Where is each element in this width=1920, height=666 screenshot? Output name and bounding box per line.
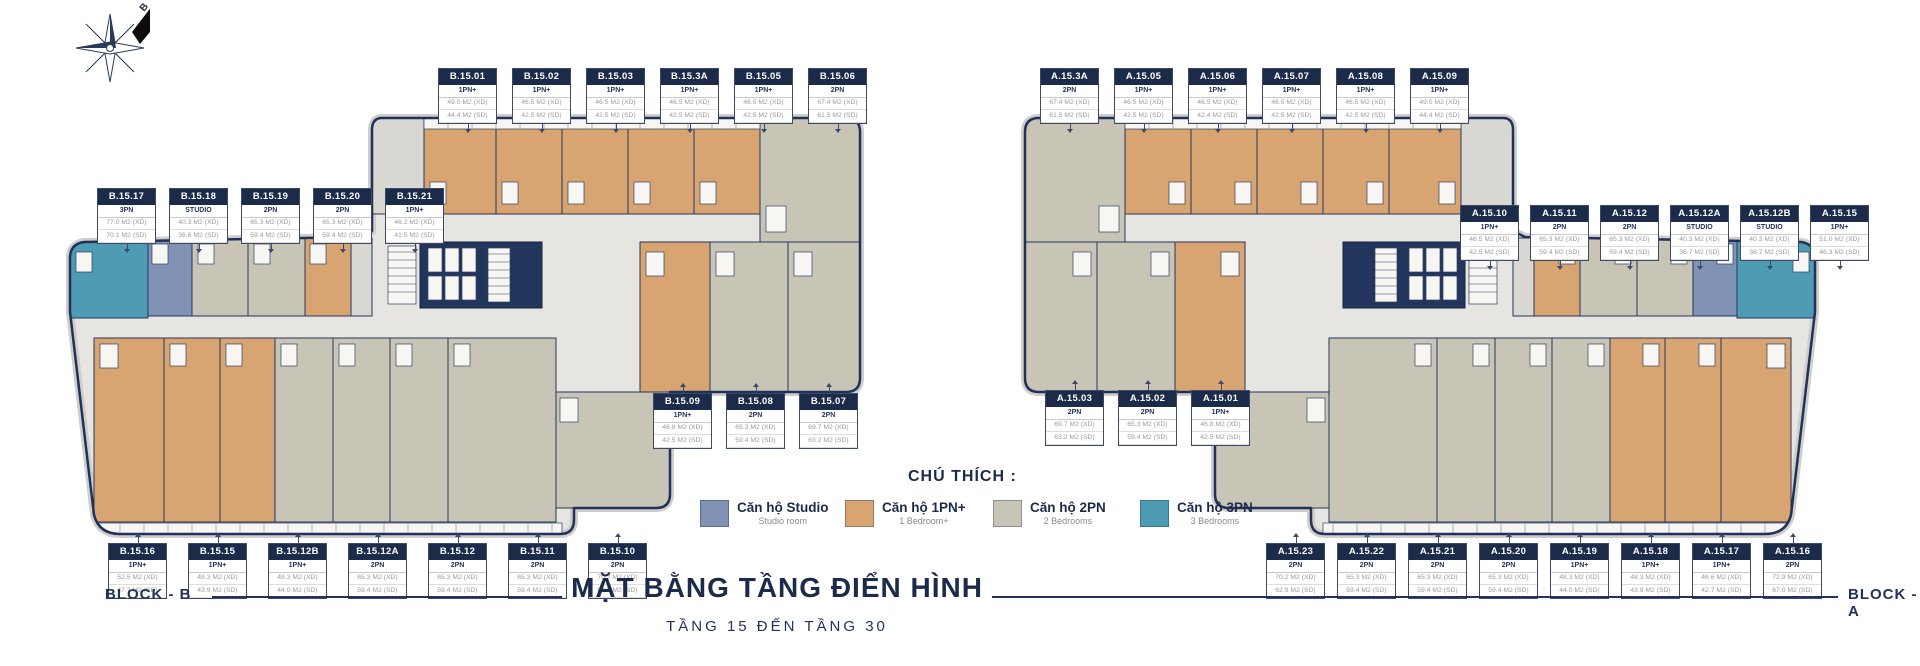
2pn-color-swatch xyxy=(993,500,1022,527)
leader-line xyxy=(616,123,617,130)
unit-id: A.15.05 xyxy=(1115,69,1172,85)
unit-area-sd: 63.2 M2 (SD) xyxy=(800,435,857,448)
unit-area-sd: 59.4 M2 (SD) xyxy=(242,230,299,243)
unit-area-xd: 48.3 M2 (XD) xyxy=(1551,573,1608,586)
unit-area-sd: 42.5 M2 (SD) xyxy=(513,110,570,123)
leader-line xyxy=(1793,536,1794,544)
unit-id: A.15.12 xyxy=(1601,206,1658,222)
unit-area-sd: 59.4 M2 (SD) xyxy=(1119,432,1176,445)
block-b-caption: BLOCK - B xyxy=(105,586,192,603)
unit-label: A.15.06 1PN+ 46.5 M2 (XD) 42.4 M2 (SD) xyxy=(1188,68,1247,124)
legend-label-vi: Căn hộ 3PN xyxy=(1177,500,1253,516)
unit-type: 2PN xyxy=(314,205,371,218)
unit-label: B.15.11 2PN 65.3 M2 (XD) 59.4 M2 (SD) xyxy=(508,543,567,599)
unit-label: B.15.20 2PN 65.3 M2 (XD) 59.4 M2 (SD) xyxy=(313,188,372,244)
unit-area-xd: 65.3 M2 (XD) xyxy=(314,218,371,231)
unit-id: B.15.09 xyxy=(654,394,711,410)
unit-label: A.15.07 1PN+ 46.5 M2 (XD) 42.5 M2 (SD) xyxy=(1262,68,1321,124)
unit-label: B.15.15 1PN+ 48.3 M2 (XD) 43.9 M2 (SD) xyxy=(188,543,247,599)
leader-line xyxy=(218,536,219,544)
unit-id: A.15.09 xyxy=(1411,69,1468,85)
3pn-color-swatch xyxy=(1140,500,1169,527)
unit-id: A.15.08 xyxy=(1337,69,1394,85)
unit-label: B.15.19 2PN 65.3 M2 (XD) 59.4 M2 (SD) xyxy=(241,188,300,244)
unit-area-xd: 48.3 M2 (XD) xyxy=(269,573,326,586)
unit-id: B.15.20 xyxy=(314,189,371,205)
unit-id: A.15.21 xyxy=(1409,544,1466,560)
unit-type: 2PN xyxy=(800,410,857,423)
block-a-rule xyxy=(992,596,1838,598)
unit-label: A.15.19 1PN+ 48.3 M2 (XD) 44.0 M2 (SD) xyxy=(1550,543,1609,599)
unit-type: 1PN+ xyxy=(1337,85,1394,98)
unit-type: 1PN+ xyxy=(587,85,644,98)
unit-type: 2PN xyxy=(727,410,784,423)
block-a-plan xyxy=(1025,118,1815,534)
unit-label: A.15.09 1PN+ 49.0 M2 (XD) 44.4 M2 (SD) xyxy=(1410,68,1469,124)
unit-label: A.15.02 2PN 65.3 M2 (XD) 59.4 M2 (SD) xyxy=(1118,390,1177,446)
unit-label: A.15.23 2PN 70.2 M2 (XD) 62.9 M2 (SD) xyxy=(1266,543,1325,599)
leader-line xyxy=(468,123,469,130)
unit-id: A.15.15 xyxy=(1811,206,1868,222)
leader-line xyxy=(838,123,839,130)
unit-id: B.15.11 xyxy=(509,544,566,560)
unit-type: 2PN xyxy=(809,85,866,98)
leader-line xyxy=(1651,536,1652,544)
leader-line xyxy=(1296,536,1297,544)
unit-id: A.15.12B xyxy=(1741,206,1798,222)
unit-area-sd: 42.5 M2 (SD) xyxy=(1461,247,1518,260)
leader-line xyxy=(538,536,539,544)
unit-area-sd: 42.5 M2 (SD) xyxy=(654,435,711,448)
leader-line xyxy=(378,536,379,544)
unit-type: 1PN+ xyxy=(1115,85,1172,98)
unit-area-xd: 46.5 M2 (XD) xyxy=(1461,235,1518,248)
unit-label-group-a-top: A.15.3A 2PN 67.4 M2 (XD) 61.5 M2 (SD) A.… xyxy=(1040,68,1469,124)
leader-line xyxy=(415,243,416,250)
unit-area-xd: 46.2 M2 (XD) xyxy=(386,218,443,231)
unit-label: A.15.20 2PN 65.3 M2 (XD) 59.4 M2 (SD) xyxy=(1479,543,1538,599)
unit-type: 1PN+ xyxy=(661,85,718,98)
unit-id: B.15.18 xyxy=(170,189,227,205)
unit-type: 2PN xyxy=(509,560,566,573)
unit-area-xd: 40.3 M2 (XD) xyxy=(170,218,227,231)
unit-area-sd: 36.7 M2 (SD) xyxy=(1671,247,1728,260)
unit-type: 2PN xyxy=(1531,222,1588,235)
unit-id: B.15.01 xyxy=(439,69,496,85)
unit-area-sd: 44.4 M2 (SD) xyxy=(1411,110,1468,123)
unit-label-group-b-middle: B.15.09 1PN+ 46.8 M2 (XD) 42.5 M2 (SD) B… xyxy=(653,393,858,449)
legend-label-vi: Căn hộ 1PN+ xyxy=(882,500,966,516)
unit-label: A.15.16 2PN 72.9 M2 (XD) 67.0 M2 (SD) xyxy=(1763,543,1822,599)
unit-id: B.15.03 xyxy=(587,69,644,85)
legend-item-2pn: Căn hộ 2PN 2 Bedrooms xyxy=(993,500,1106,527)
unit-id: A.15.12A xyxy=(1671,206,1728,222)
unit-type: 1PN+ xyxy=(735,85,792,98)
unit-label: B.15.12A 2PN 65.3 M2 (XD) 59.4 M2 (SD) xyxy=(348,543,407,599)
unit-area-xd: 40.3 M2 (XD) xyxy=(1741,235,1798,248)
unit-area-sd: 44.4 M2 (SD) xyxy=(439,110,496,123)
unit-id: A.15.11 xyxy=(1531,206,1588,222)
unit-label: B.15.03 1PN+ 46.5 M2 (XD) 42.5 M2 (SD) xyxy=(586,68,645,124)
leader-line xyxy=(618,536,619,544)
unit-type: 1PN+ xyxy=(1551,560,1608,573)
unit-label: A.15.22 2PN 65.3 M2 (XD) 59.4 M2 (SD) xyxy=(1337,543,1396,599)
unit-type: 2PN xyxy=(1338,560,1395,573)
unit-type: 1PN+ xyxy=(1411,85,1468,98)
unit-area-xd: 65.3 M2 (XD) xyxy=(429,573,486,586)
unit-area-xd: 72.9 M2 (XD) xyxy=(1764,573,1821,586)
leader-line xyxy=(1560,260,1561,267)
unit-id: A.15.07 xyxy=(1263,69,1320,85)
unit-type: 2PN xyxy=(1764,560,1821,573)
unit-label: A.15.18 1PN+ 48.3 M2 (XD) 43.9 M2 (SD) xyxy=(1621,543,1680,599)
unit-id: A.15.17 xyxy=(1693,544,1750,560)
unit-label: B.15.3A 1PN+ 46.5 M2 (XD) 42.5 M2 (SD) xyxy=(660,68,719,124)
unit-area-sd: 42.5 M2 (SD) xyxy=(1192,432,1249,445)
legend-label-en: 1 Bedroom+ xyxy=(882,516,966,528)
unit-label: A.15.21 2PN 65.3 M2 (XD) 59.4 M2 (SD) xyxy=(1408,543,1467,599)
unit-label: A.15.17 1PN+ 46.6 M2 (XD) 42.7 M2 (SD) xyxy=(1692,543,1751,599)
unit-type: STUDIO xyxy=(1671,222,1728,235)
unit-area-xd: 67.4 M2 (XD) xyxy=(1041,98,1098,111)
unit-area-xd: 46.5 M2 (XD) xyxy=(587,98,644,111)
unit-area-sd: 42.4 M2 (SD) xyxy=(1189,110,1246,123)
unit-label: B.15.05 1PN+ 46.5 M2 (XD) 42.5 M2 (SD) xyxy=(734,68,793,124)
unit-id: A.15.20 xyxy=(1480,544,1537,560)
unit-area-xd: 48.3 M2 (XD) xyxy=(189,573,246,586)
unit-area-xd: 46.5 M2 (XD) xyxy=(1337,98,1394,111)
unit-label-group-a-bottom: A.15.23 2PN 70.2 M2 (XD) 62.9 M2 (SD) A.… xyxy=(1266,543,1822,599)
unit-label-group-a-right: A.15.10 1PN+ 46.5 M2 (XD) 42.5 M2 (SD) A… xyxy=(1460,205,1869,261)
unit-id: A.15.10 xyxy=(1461,206,1518,222)
unit-type: STUDIO xyxy=(170,205,227,218)
leader-line xyxy=(690,123,691,130)
unit-id: B.15.08 xyxy=(727,394,784,410)
unit-label-group-b-top: B.15.01 1PN+ 49.0 M2 (XD) 44.4 M2 (SD) B… xyxy=(438,68,867,124)
unit-type: 2PN xyxy=(429,560,486,573)
unit-label: B.15.01 1PN+ 49.0 M2 (XD) 44.4 M2 (SD) xyxy=(438,68,497,124)
block-a-caption: BLOCK - A xyxy=(1848,586,1920,620)
unit-label: B.15.21 1PN+ 46.2 M2 (XD) 41.5 M2 (SD) xyxy=(385,188,444,244)
unit-id: A.15.22 xyxy=(1338,544,1395,560)
leader-line xyxy=(1490,260,1491,267)
unit-area-xd: 46.5 M2 (XD) xyxy=(1115,98,1172,111)
unit-label: B.15.06 2PN 67.4 M2 (XD) 61.5 M2 (SD) xyxy=(808,68,867,124)
unit-id: B.15.19 xyxy=(242,189,299,205)
unit-id: A.15.03 xyxy=(1046,391,1103,407)
unit-area-sd: 46.3 M2 (SD) xyxy=(1811,247,1868,260)
leader-line xyxy=(683,386,684,394)
unit-label: A.15.10 1PN+ 46.5 M2 (XD) 42.5 M2 (SD) xyxy=(1460,205,1519,261)
unit-area-sd: 42.5 M2 (SD) xyxy=(661,110,718,123)
legend-label-en: 2 Bedrooms xyxy=(1030,516,1106,528)
unit-label: B.15.12 2PN 65.3 M2 (XD) 59.4 M2 (SD) xyxy=(428,543,487,599)
leader-line xyxy=(756,386,757,394)
unit-id: A.15.01 xyxy=(1192,391,1249,407)
unit-area-sd: 59.4 M2 (SD) xyxy=(1531,247,1588,260)
floor-plan-page: B B.15.01 1PN+ 49.0 M2 (XD) 44.4 M2 (SD)… xyxy=(0,0,1920,666)
unit-id: B.15.3A xyxy=(661,69,718,85)
unit-type: 2PN xyxy=(242,205,299,218)
leader-line xyxy=(343,243,344,250)
unit-area-xd: 46.5 M2 (XD) xyxy=(661,98,718,111)
unit-label: A.15.05 1PN+ 46.5 M2 (XD) 42.5 M2 (SD) xyxy=(1114,68,1173,124)
unit-area-xd: 69.7 M2 (XD) xyxy=(1046,420,1103,433)
legend-label-en: Studio room xyxy=(737,516,829,528)
legend-label-vi: Căn hộ Studio xyxy=(737,500,829,516)
unit-id: B.15.12A xyxy=(349,544,406,560)
unit-area-xd: 65.3 M2 (XD) xyxy=(1338,573,1395,586)
studio-color-swatch xyxy=(700,500,729,527)
unit-area-xd: 65.3 M2 (XD) xyxy=(242,218,299,231)
unit-area-sd: 70.1 M2 (SD) xyxy=(98,230,155,243)
unit-area-xd: 69.7 M2 (XD) xyxy=(800,423,857,436)
unit-type: 1PN+ xyxy=(1461,222,1518,235)
legend-label-en: 3 Bedrooms xyxy=(1177,516,1253,528)
unit-label: A.15.03 2PN 69.7 M2 (XD) 63.2 M2 (SD) xyxy=(1045,390,1104,446)
leader-line xyxy=(764,123,765,130)
block-b-rule xyxy=(212,596,562,598)
unit-type: 1PN+ xyxy=(1189,85,1246,98)
unit-type: 1PN+ xyxy=(109,560,166,573)
unit-id: A.15.23 xyxy=(1267,544,1324,560)
unit-id: B.15.17 xyxy=(98,189,155,205)
leader-line xyxy=(458,536,459,544)
unit-type: 2PN xyxy=(1041,85,1098,98)
unit-area-sd: 63.2 M2 (SD) xyxy=(1046,432,1103,445)
page-title: MẶT BẰNG TẦNG ĐIỂN HÌNH xyxy=(571,572,983,604)
compass-icon: B xyxy=(40,2,150,87)
leader-line xyxy=(829,386,830,394)
unit-id: A.15.16 xyxy=(1764,544,1821,560)
leader-line xyxy=(1144,123,1145,130)
unit-label-group-a-middle: A.15.03 2PN 69.7 M2 (XD) 63.2 M2 (SD) A.… xyxy=(1045,390,1250,446)
unit-area-xd: 48.3 M2 (XD) xyxy=(1622,573,1679,586)
unit-id: B.15.10 xyxy=(589,544,646,560)
unit-type: 2PN xyxy=(1267,560,1324,573)
unit-label: A.15.12 2PN 65.3 M2 (XD) 59.4 M2 (SD) xyxy=(1600,205,1659,261)
unit-area-xd: 65.3 M2 (XD) xyxy=(1480,573,1537,586)
unit-area-xd: 49.0 M2 (XD) xyxy=(1411,98,1468,111)
legend-title: CHÚ THÍCH : xyxy=(908,468,1017,486)
unit-area-sd: 59.4 M2 (SD) xyxy=(314,230,371,243)
leader-line xyxy=(1218,123,1219,130)
unit-area-sd: 59.4 M2 (SD) xyxy=(727,435,784,448)
unit-type: 1PN+ xyxy=(1192,407,1249,420)
unit-area-xd: 46.8 M2 (XD) xyxy=(654,423,711,436)
unit-label: B.15.12B 1PN+ 48.3 M2 (XD) 44.0 M2 (SD) xyxy=(268,543,327,599)
unit-id: B.15.21 xyxy=(386,189,443,205)
unit-area-xd: 46.8 M2 (XD) xyxy=(1192,420,1249,433)
unit-type: STUDIO xyxy=(1741,222,1798,235)
unit-label: A.15.15 1PN+ 51.0 M2 (XD) 46.3 M2 (SD) xyxy=(1810,205,1869,261)
unit-area-xd: 70.2 M2 (XD) xyxy=(1267,573,1324,586)
unit-area-xd: 51.0 M2 (XD) xyxy=(1811,235,1868,248)
unit-area-sd: 41.5 M2 (SD) xyxy=(386,230,443,243)
legend-item-studio: Căn hộ Studio Studio room xyxy=(700,500,829,527)
unit-type: 2PN xyxy=(1046,407,1103,420)
unit-area-xd: 77.0 M2 (XD) xyxy=(98,218,155,231)
unit-area-xd: 46.5 M2 (XD) xyxy=(735,98,792,111)
unit-area-sd: 42.5 M2 (SD) xyxy=(587,110,644,123)
legend-item-1pn: Căn hộ 1PN+ 1 Bedroom+ xyxy=(845,500,966,527)
leader-line xyxy=(298,536,299,544)
unit-type: 1PN+ xyxy=(513,85,570,98)
unit-id: B.15.05 xyxy=(735,69,792,85)
unit-type: 1PN+ xyxy=(654,410,711,423)
unit-label: A.15.3A 2PN 67.4 M2 (XD) 61.5 M2 (SD) xyxy=(1040,68,1099,124)
leader-line xyxy=(1440,123,1441,130)
leader-line xyxy=(1722,536,1723,544)
unit-area-xd: 49.0 M2 (XD) xyxy=(439,98,496,111)
unit-type: 1PN+ xyxy=(439,85,496,98)
unit-label: B.15.09 1PN+ 46.8 M2 (XD) 42.5 M2 (SD) xyxy=(653,393,712,449)
legend-label-vi: Căn hộ 2PN xyxy=(1030,500,1106,516)
leader-line xyxy=(1438,536,1439,544)
unit-label: A.15.11 2PN 65.3 M2 (XD) 59.4 M2 (SD) xyxy=(1530,205,1589,261)
unit-area-sd: 42.5 M2 (SD) xyxy=(1115,110,1172,123)
unit-type: 3PN xyxy=(98,205,155,218)
unit-area-xd: 40.3 M2 (XD) xyxy=(1671,235,1728,248)
unit-area-xd: 46.5 M2 (XD) xyxy=(513,98,570,111)
unit-type: 2PN xyxy=(1409,560,1466,573)
unit-area-xd: 65.3 M2 (XD) xyxy=(1119,420,1176,433)
1pn-color-swatch xyxy=(845,500,874,527)
unit-id: B.15.02 xyxy=(513,69,570,85)
unit-type: 2PN xyxy=(1480,560,1537,573)
unit-type: 1PN+ xyxy=(1811,222,1868,235)
leader-line xyxy=(1221,383,1222,391)
unit-id: B.15.16 xyxy=(109,544,166,560)
unit-area-sd: 61.5 M2 (SD) xyxy=(809,110,866,123)
leader-line xyxy=(271,243,272,250)
unit-area-xd: 65.3 M2 (XD) xyxy=(509,573,566,586)
unit-area-xd: 52.5 M2 (XD) xyxy=(109,573,166,586)
unit-label: B.15.18 STUDIO 40.3 M2 (XD) 36.6 M2 (SD) xyxy=(169,188,228,244)
unit-area-xd: 67.4 M2 (XD) xyxy=(809,98,866,111)
leader-line xyxy=(1509,536,1510,544)
unit-type: 1PN+ xyxy=(386,205,443,218)
unit-label: B.15.07 2PN 69.7 M2 (XD) 63.2 M2 (SD) xyxy=(799,393,858,449)
unit-area-sd: 42.5 M2 (SD) xyxy=(1337,110,1394,123)
leader-line xyxy=(138,536,139,544)
unit-label: A.15.12A STUDIO 40.3 M2 (XD) 36.7 M2 (SD… xyxy=(1670,205,1729,261)
unit-label: A.15.01 1PN+ 46.8 M2 (XD) 42.5 M2 (SD) xyxy=(1191,390,1250,446)
unit-area-xd: 46.5 M2 (XD) xyxy=(1263,98,1320,111)
unit-type: 2PN xyxy=(1601,222,1658,235)
unit-type: 2PN xyxy=(589,560,646,573)
unit-type: 2PN xyxy=(1119,407,1176,420)
unit-id: B.15.15 xyxy=(189,544,246,560)
unit-area-xd: 65.3 M2 (XD) xyxy=(1409,573,1466,586)
unit-label: B.15.08 2PN 65.3 M2 (XD) 59.4 M2 (SD) xyxy=(726,393,785,449)
unit-type: 1PN+ xyxy=(1693,560,1750,573)
unit-id: A.15.18 xyxy=(1622,544,1679,560)
unit-type: 1PN+ xyxy=(189,560,246,573)
leader-line xyxy=(1630,260,1631,267)
unit-id: B.15.12 xyxy=(429,544,486,560)
unit-label: B.15.17 3PN 77.0 M2 (XD) 70.1 M2 (SD) xyxy=(97,188,156,244)
unit-label: A.15.12B STUDIO 40.3 M2 (XD) 36.7 M2 (SD… xyxy=(1740,205,1799,261)
unit-id: A.15.02 xyxy=(1119,391,1176,407)
unit-area-xd: 65.3 M2 (XD) xyxy=(1601,235,1658,248)
unit-id: B.15.07 xyxy=(800,394,857,410)
unit-area-xd: 65.3 M2 (XD) xyxy=(349,573,406,586)
unit-id: A.15.19 xyxy=(1551,544,1608,560)
leader-line xyxy=(1770,260,1771,267)
unit-id: B.15.06 xyxy=(809,69,866,85)
leader-line xyxy=(1075,383,1076,391)
unit-label: A.15.08 1PN+ 46.5 M2 (XD) 42.5 M2 (SD) xyxy=(1336,68,1395,124)
unit-id: A.15.3A xyxy=(1041,69,1098,85)
unit-id: B.15.12B xyxy=(269,544,326,560)
leader-line xyxy=(1580,536,1581,544)
leader-line xyxy=(1367,536,1368,544)
legend-item-3pn: Căn hộ 3PN 3 Bedrooms xyxy=(1140,500,1253,527)
unit-area-sd: 42.5 M2 (SD) xyxy=(735,110,792,123)
leader-line xyxy=(1840,260,1841,267)
unit-area-xd: 46.5 M2 (XD) xyxy=(1189,98,1246,111)
unit-label-group-b-left: B.15.17 3PN 77.0 M2 (XD) 70.1 M2 (SD) B.… xyxy=(97,188,444,244)
page-subtitle: TẦNG 15 ĐẾN TẦNG 30 xyxy=(666,618,888,635)
leader-line xyxy=(127,243,128,250)
unit-area-sd: 61.5 M2 (SD) xyxy=(1041,110,1098,123)
leader-line xyxy=(1700,260,1701,267)
unit-type: 1PN+ xyxy=(269,560,326,573)
unit-area-sd: 36.7 M2 (SD) xyxy=(1741,247,1798,260)
leader-line xyxy=(1292,123,1293,130)
unit-type: 1PN+ xyxy=(1263,85,1320,98)
leader-line xyxy=(1070,123,1071,130)
unit-area-xd: 65.3 M2 (XD) xyxy=(1531,235,1588,248)
unit-label: B.15.02 1PN+ 46.5 M2 (XD) 42.5 M2 (SD) xyxy=(512,68,571,124)
unit-area-sd: 59.4 M2 (SD) xyxy=(1601,247,1658,260)
unit-id: A.15.06 xyxy=(1189,69,1246,85)
unit-area-xd: 46.6 M2 (XD) xyxy=(1693,573,1750,586)
unit-type: 2PN xyxy=(349,560,406,573)
leader-line xyxy=(542,123,543,130)
unit-area-xd: 65.3 M2 (XD) xyxy=(727,423,784,436)
leader-line xyxy=(1366,123,1367,130)
leader-line xyxy=(1148,383,1149,391)
unit-area-sd: 42.5 M2 (SD) xyxy=(1263,110,1320,123)
unit-type: 1PN+ xyxy=(1622,560,1679,573)
unit-area-sd: 36.6 M2 (SD) xyxy=(170,230,227,243)
leader-line xyxy=(199,243,200,250)
block-b-plan xyxy=(70,118,860,534)
